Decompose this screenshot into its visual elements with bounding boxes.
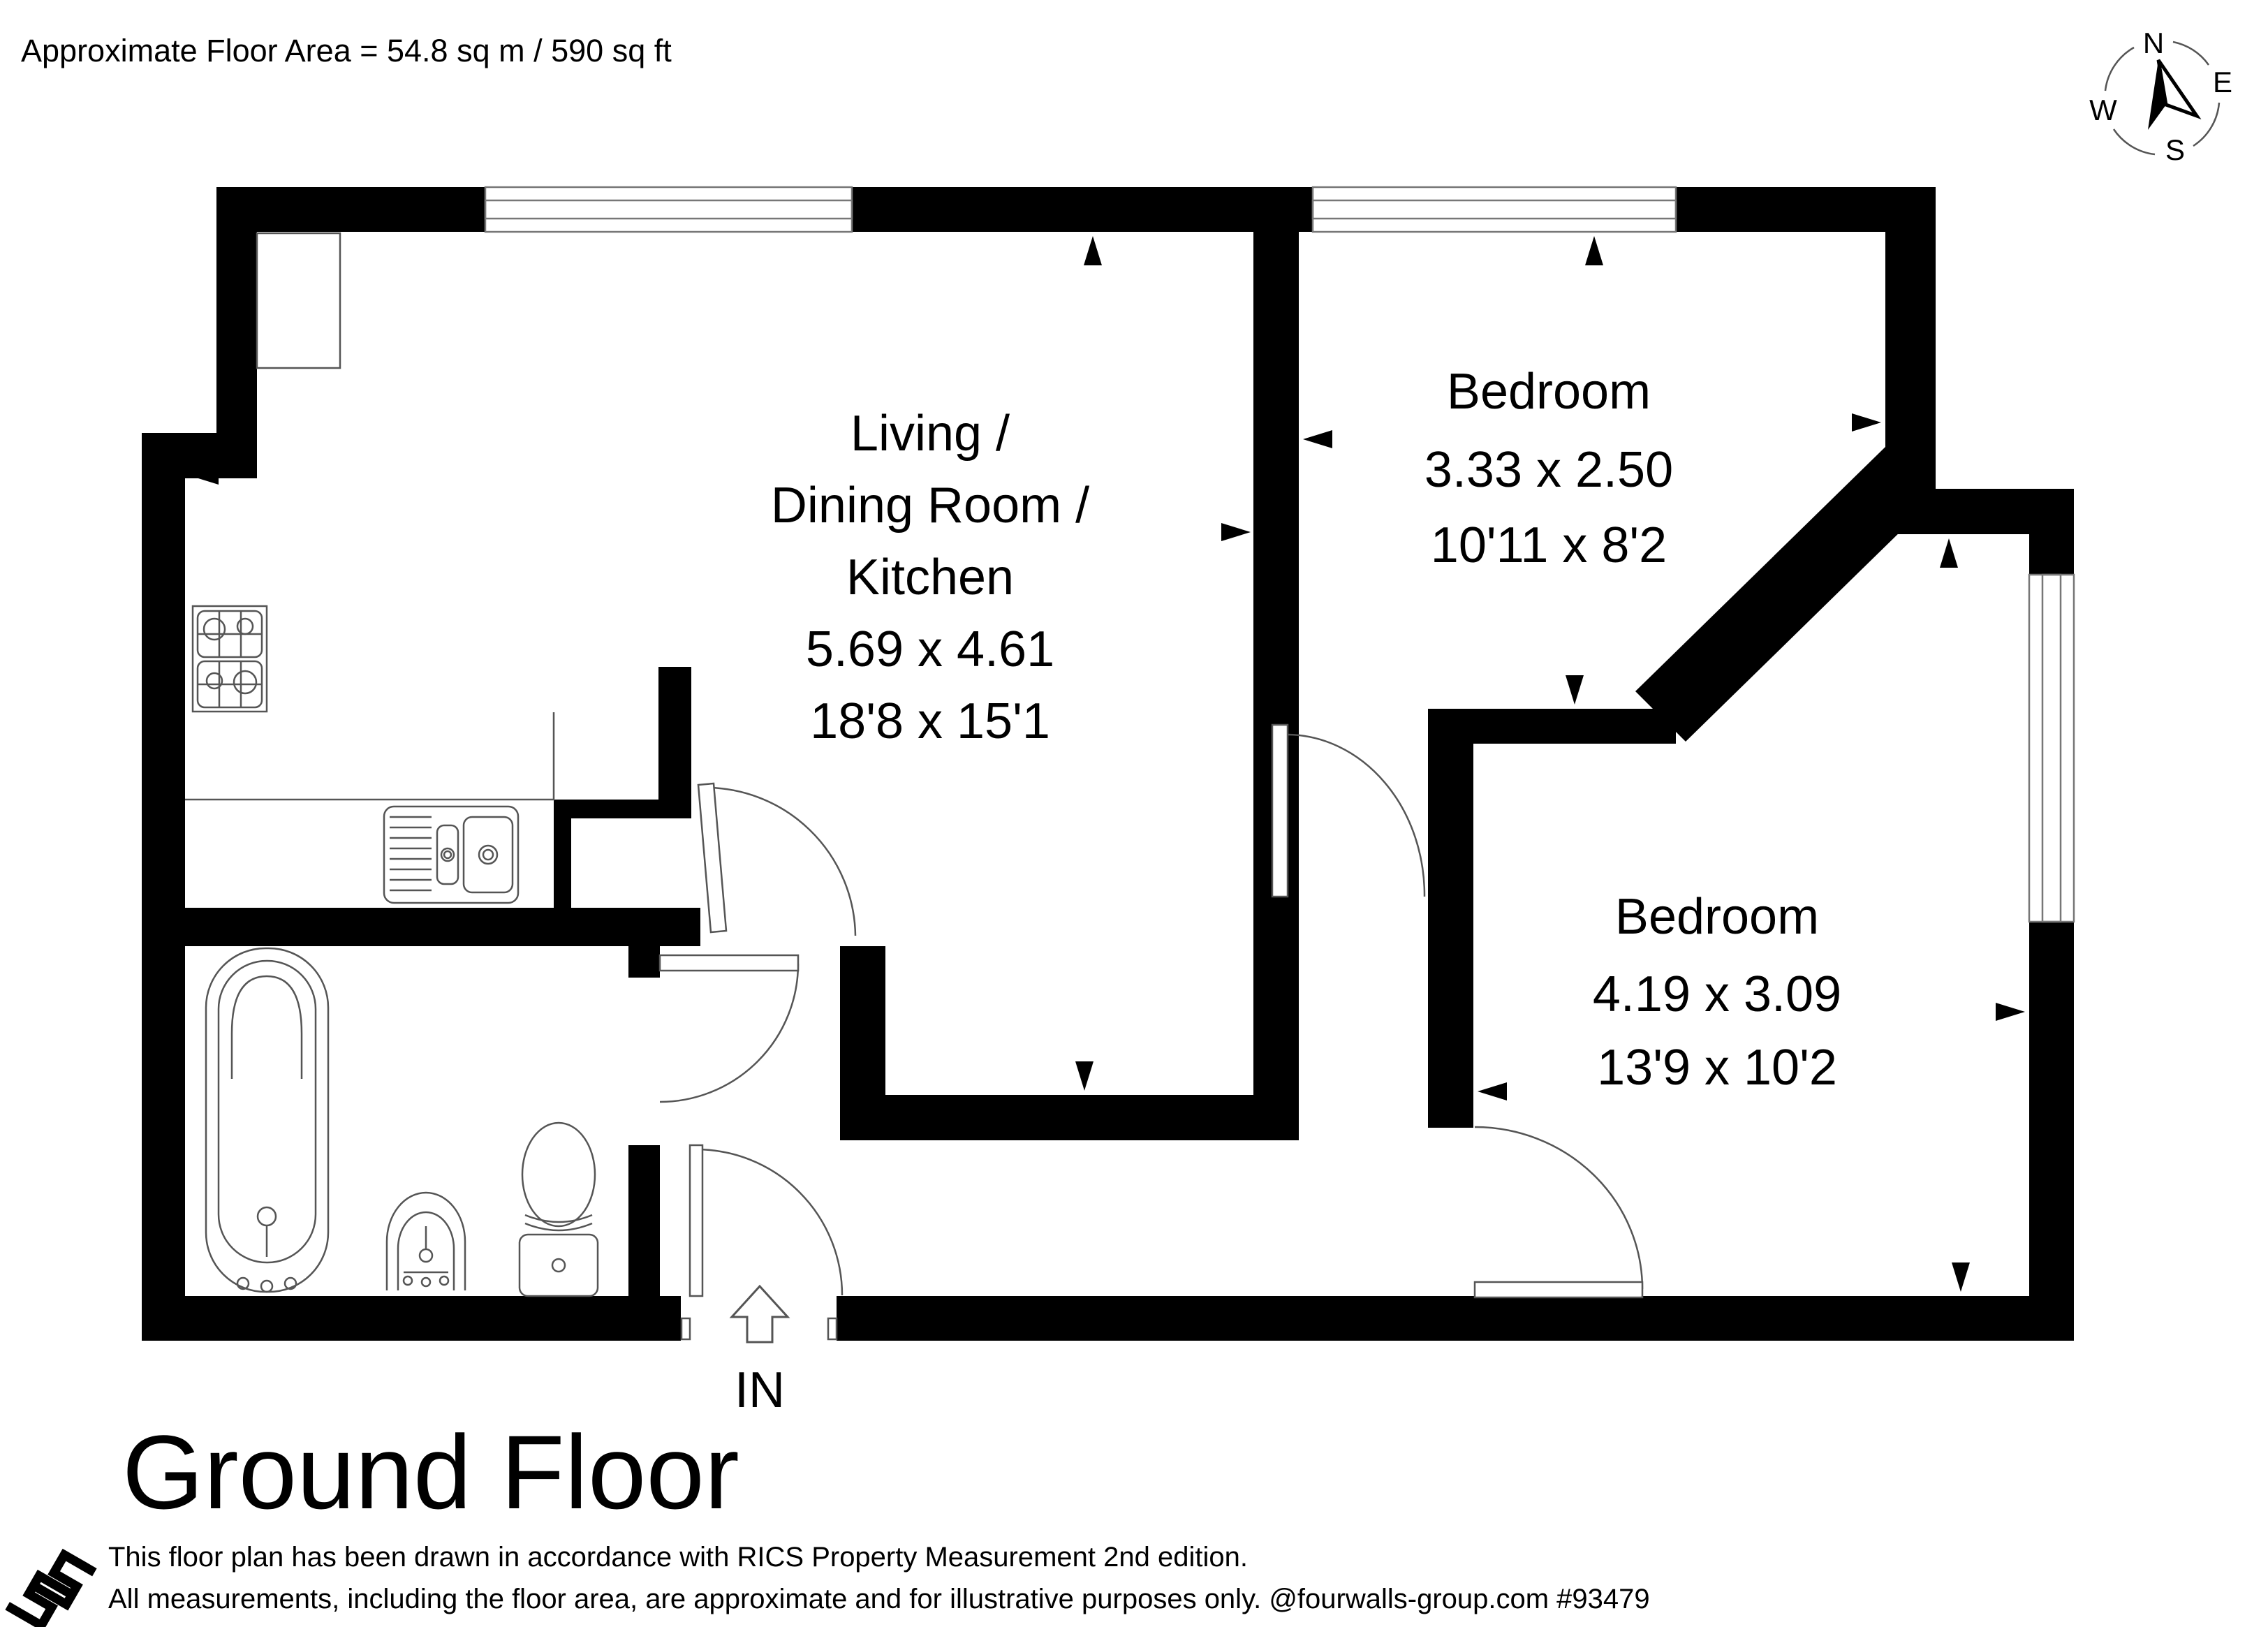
living-name-line1: Living / [850, 406, 1010, 462]
bedroom2-name: Bedroom [1615, 889, 1819, 945]
bedroom1-left-arrow-icon [1303, 430, 1332, 448]
living-name-line3: Kitchen [846, 550, 1014, 605]
window-bedroom1-top [1313, 187, 1676, 232]
fourwalls-logo-icon [8, 1543, 95, 1627]
doors [660, 725, 1642, 1339]
living-up-arrow-icon [1084, 236, 1102, 265]
bedroom2-right-arrow-icon [1996, 1003, 2025, 1021]
footer-line1: This floor plan has been drawn in accord… [108, 1542, 1248, 1573]
living-name-line2: Dining Room / [771, 478, 1089, 533]
floor-area-label: Approximate Floor Area = 54.8 sq m / 590… [21, 33, 672, 68]
footer-line2: All measurements, including the floor ar… [108, 1584, 1650, 1614]
bedroom1-up-arrow-icon [1585, 236, 1603, 265]
bedroom1-down-arrow-icon [1566, 675, 1584, 705]
bedroom2-metric-dims: 4.19 x 3.09 [1593, 966, 1841, 1022]
bedroom1-imperial-dims: 10'11 x 8'2 [1431, 517, 1667, 573]
living-down-arrow-icon [1075, 1061, 1093, 1091]
entrance-in-label: IN [735, 1362, 785, 1418]
room-label-bedroom1: Bedroom 3.33 x 2.50 10'11 x 8'2 [1424, 364, 1673, 573]
bedroom1-right-arrow-icon [1852, 413, 1881, 432]
bath-icon [206, 948, 328, 1292]
sink-icon [384, 807, 518, 903]
compass-north-label: N [2143, 27, 2164, 59]
toilet-icon [520, 1123, 598, 1296]
floor-plan: N E S W Approximate Floor Area = 54.8 sq… [0, 0, 2268, 1627]
bathroom-fixtures [206, 948, 598, 1296]
hob-icon [193, 606, 267, 712]
living-room-door [698, 783, 855, 936]
compass-west-label: W [2089, 94, 2117, 126]
bathroom-door [660, 955, 798, 1102]
walls [142, 187, 2074, 1341]
living-metric-dims: 5.69 x 4.61 [806, 621, 1054, 677]
page-title: Ground Floor [122, 1413, 739, 1531]
worktop [257, 233, 340, 368]
bedroom2-down-arrow-icon [1952, 1262, 1970, 1292]
compass-south-label: S [2165, 133, 2185, 166]
counter-edge [185, 712, 554, 800]
basin-icon [387, 1193, 465, 1290]
entrance-arrow-icon [732, 1286, 788, 1342]
room-label-living: Living / Dining Room / Kitchen 5.69 x 4.… [771, 406, 1089, 749]
bedroom1-name: Bedroom [1447, 364, 1651, 420]
bedroom2-up-arrow-icon [1940, 538, 1958, 568]
room-label-bedroom2: Bedroom 4.19 x 3.09 13'9 x 10'2 [1593, 889, 1841, 1096]
compass-east-label: E [2213, 66, 2232, 98]
living-right-arrow-icon [1221, 523, 1251, 541]
bedroom2-door [1475, 1127, 1642, 1297]
bedroom2-left-arrow-icon [1478, 1082, 1507, 1100]
compass-icon: N E S W [2089, 27, 2232, 166]
window-bedroom2-right [2029, 575, 2074, 922]
window-living-top [485, 187, 852, 232]
bedroom1-metric-dims: 3.33 x 2.50 [1424, 442, 1673, 498]
living-imperial-dims: 18'8 x 15'1 [810, 693, 1050, 749]
bedroom2-imperial-dims: 13'9 x 10'2 [1597, 1040, 1837, 1096]
